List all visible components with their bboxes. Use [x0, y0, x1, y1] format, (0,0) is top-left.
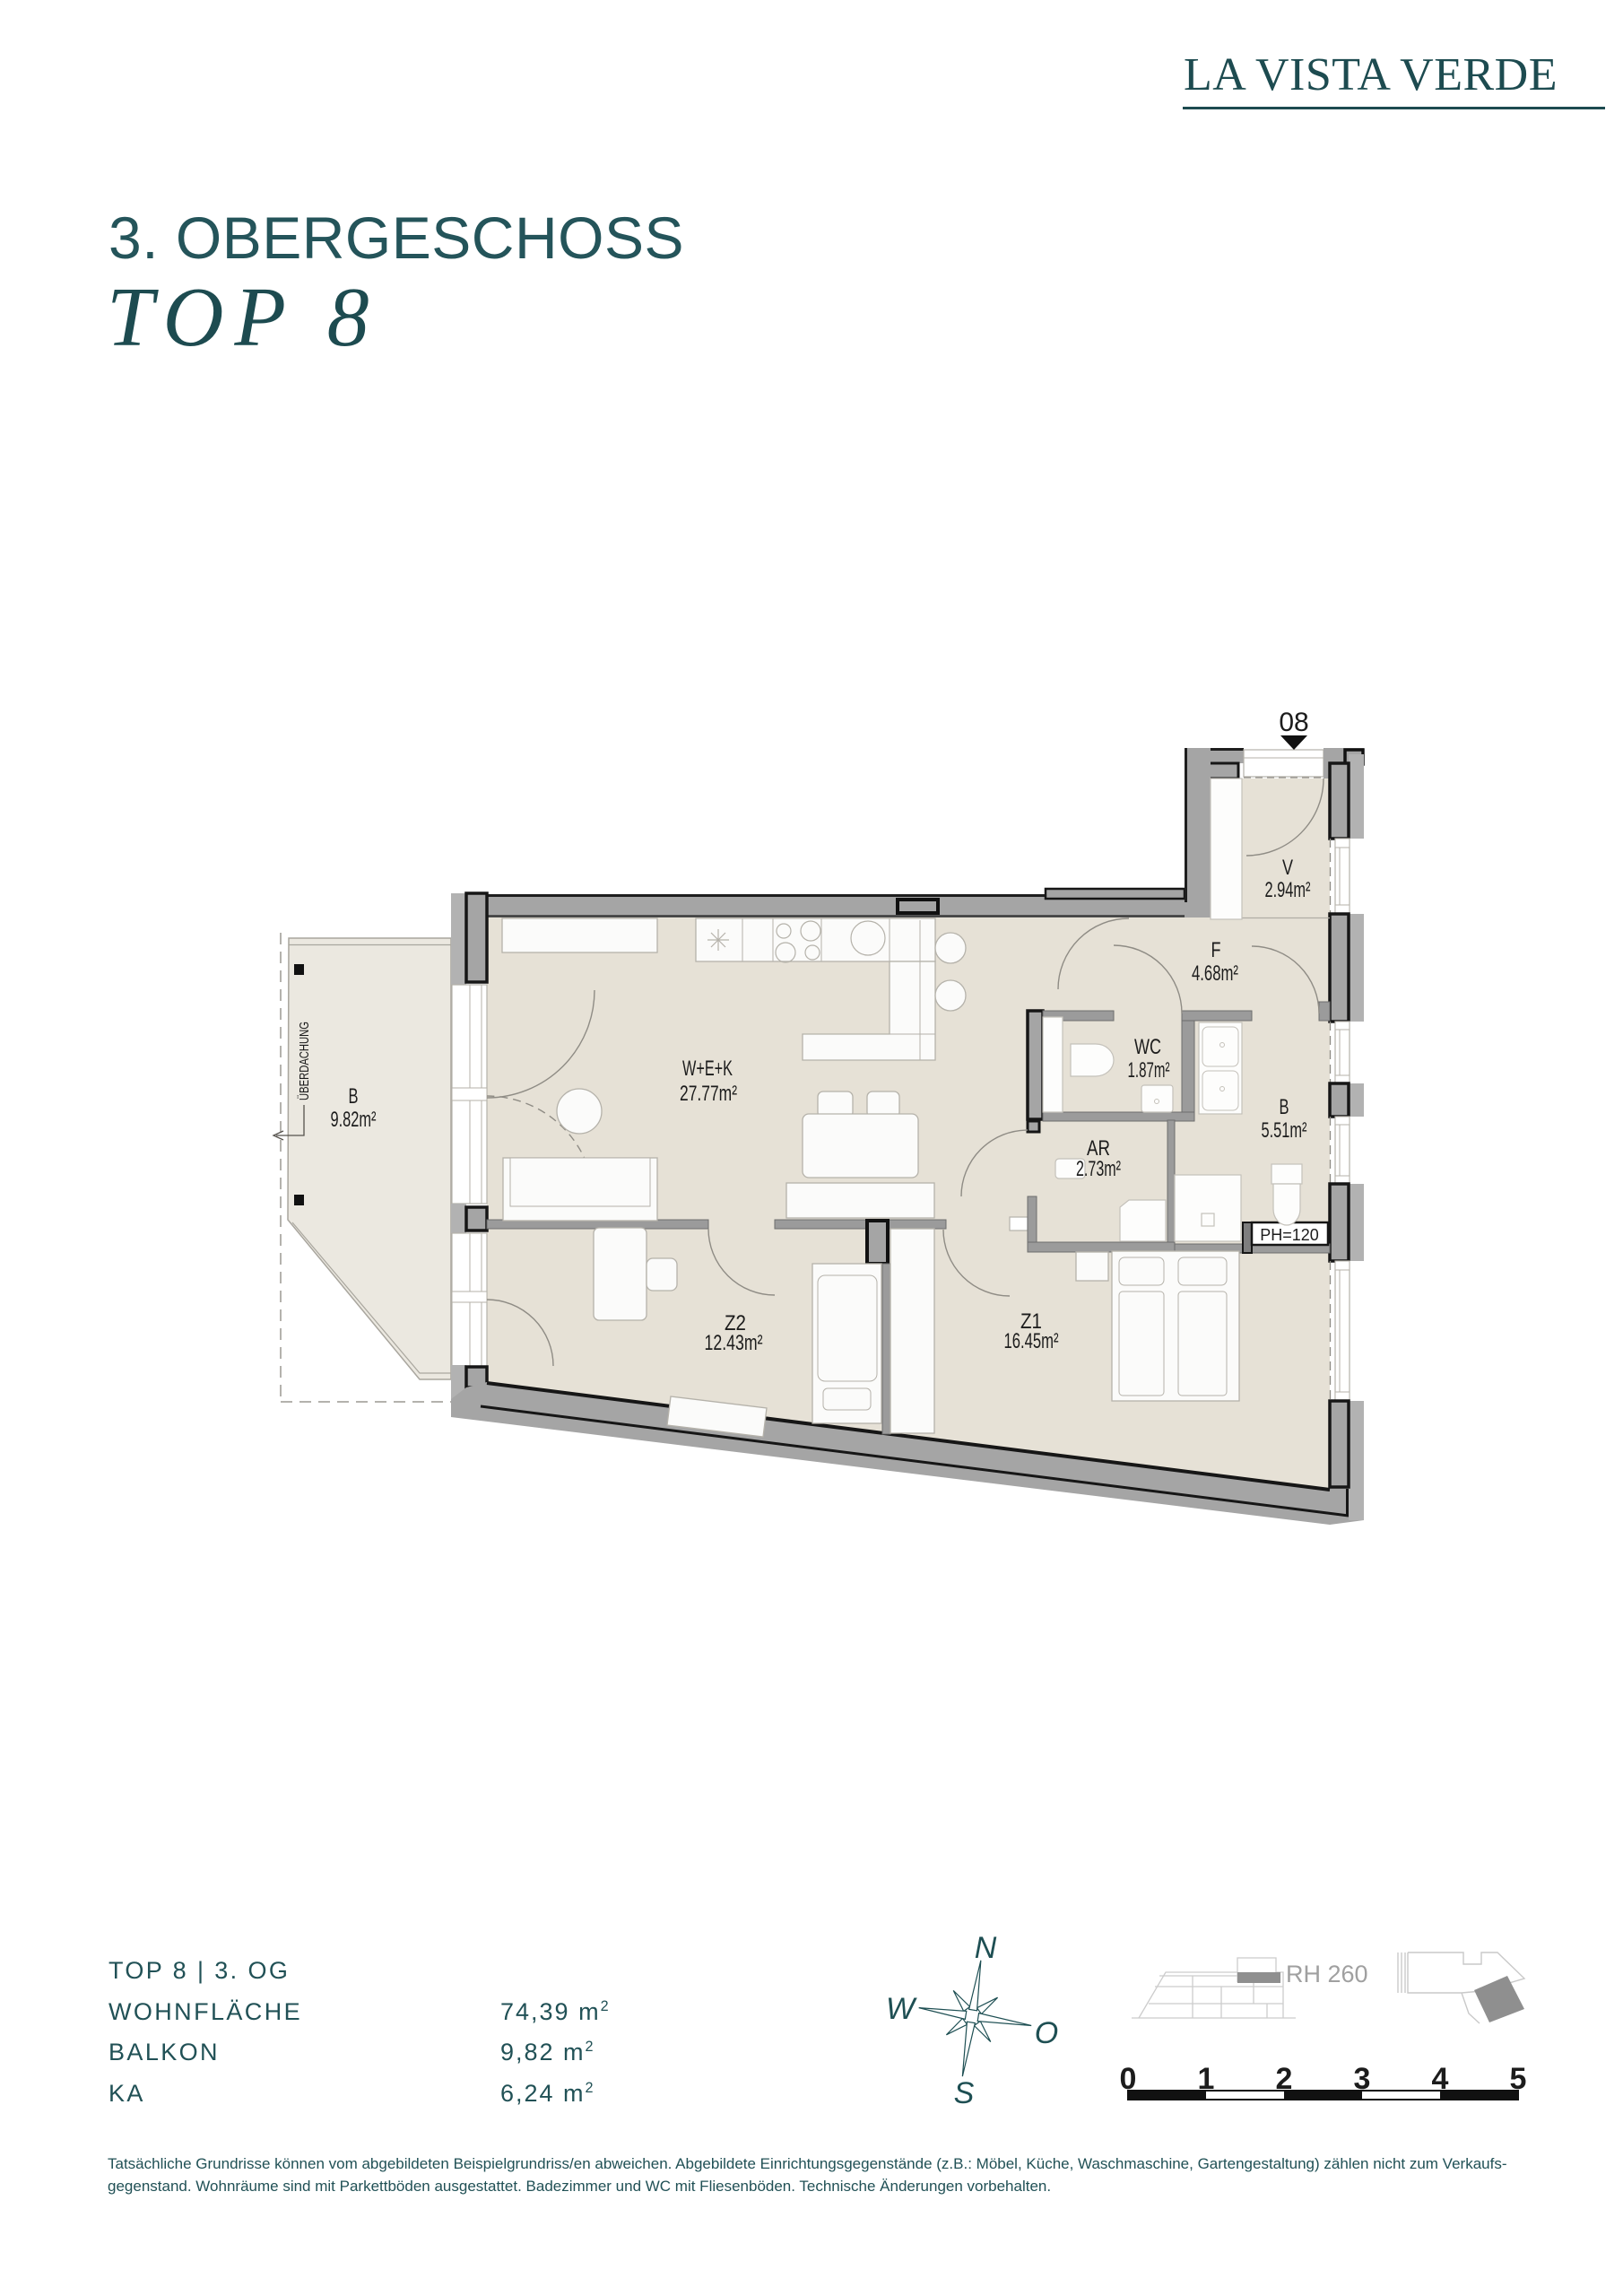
svg-text:5.51m²: 5.51m²: [1262, 1118, 1307, 1143]
svg-text:WC: WC: [1134, 1035, 1161, 1059]
svg-text:RH 260: RH 260: [1286, 1961, 1368, 1987]
svg-text:2: 2: [1276, 2062, 1293, 2096]
svg-text:9.82m²: 9.82m²: [331, 1108, 377, 1132]
svg-text:4: 4: [1432, 2062, 1449, 2096]
svg-text:ÜBERDACHUNG: ÜBERDACHUNG: [296, 1022, 312, 1100]
svg-text:1.87m²: 1.87m²: [1128, 1058, 1170, 1083]
svg-text:F: F: [1211, 938, 1221, 962]
svg-text:B: B: [349, 1084, 359, 1109]
svg-text:3: 3: [1354, 2062, 1371, 2096]
svg-text:16.45m²: 16.45m²: [1004, 1329, 1059, 1353]
svg-text:N: N: [975, 1931, 997, 1965]
svg-text:1: 1: [1198, 2062, 1215, 2096]
svg-text:B: B: [1280, 1095, 1289, 1119]
svg-text:4.68m²: 4.68m²: [1192, 961, 1238, 986]
svg-text:W+E+K: W+E+K: [682, 1057, 733, 1081]
svg-text:W: W: [886, 1992, 917, 2026]
svg-text:5: 5: [1510, 2062, 1527, 2096]
svg-text:08: 08: [1279, 708, 1308, 737]
svg-text:V: V: [1282, 856, 1293, 880]
svg-text:2.94m²: 2.94m²: [1265, 878, 1311, 902]
svg-text:2.73m²: 2.73m²: [1076, 1157, 1121, 1181]
svg-text:0: 0: [1120, 2062, 1137, 2096]
svg-text:12.43m²: 12.43m²: [705, 1331, 763, 1355]
svg-text:O: O: [1035, 2016, 1058, 2050]
svg-text:27.77m²: 27.77m²: [680, 1082, 737, 1106]
svg-text:PH=120: PH=120: [1260, 1226, 1319, 1244]
svg-text:S: S: [954, 2076, 975, 2110]
